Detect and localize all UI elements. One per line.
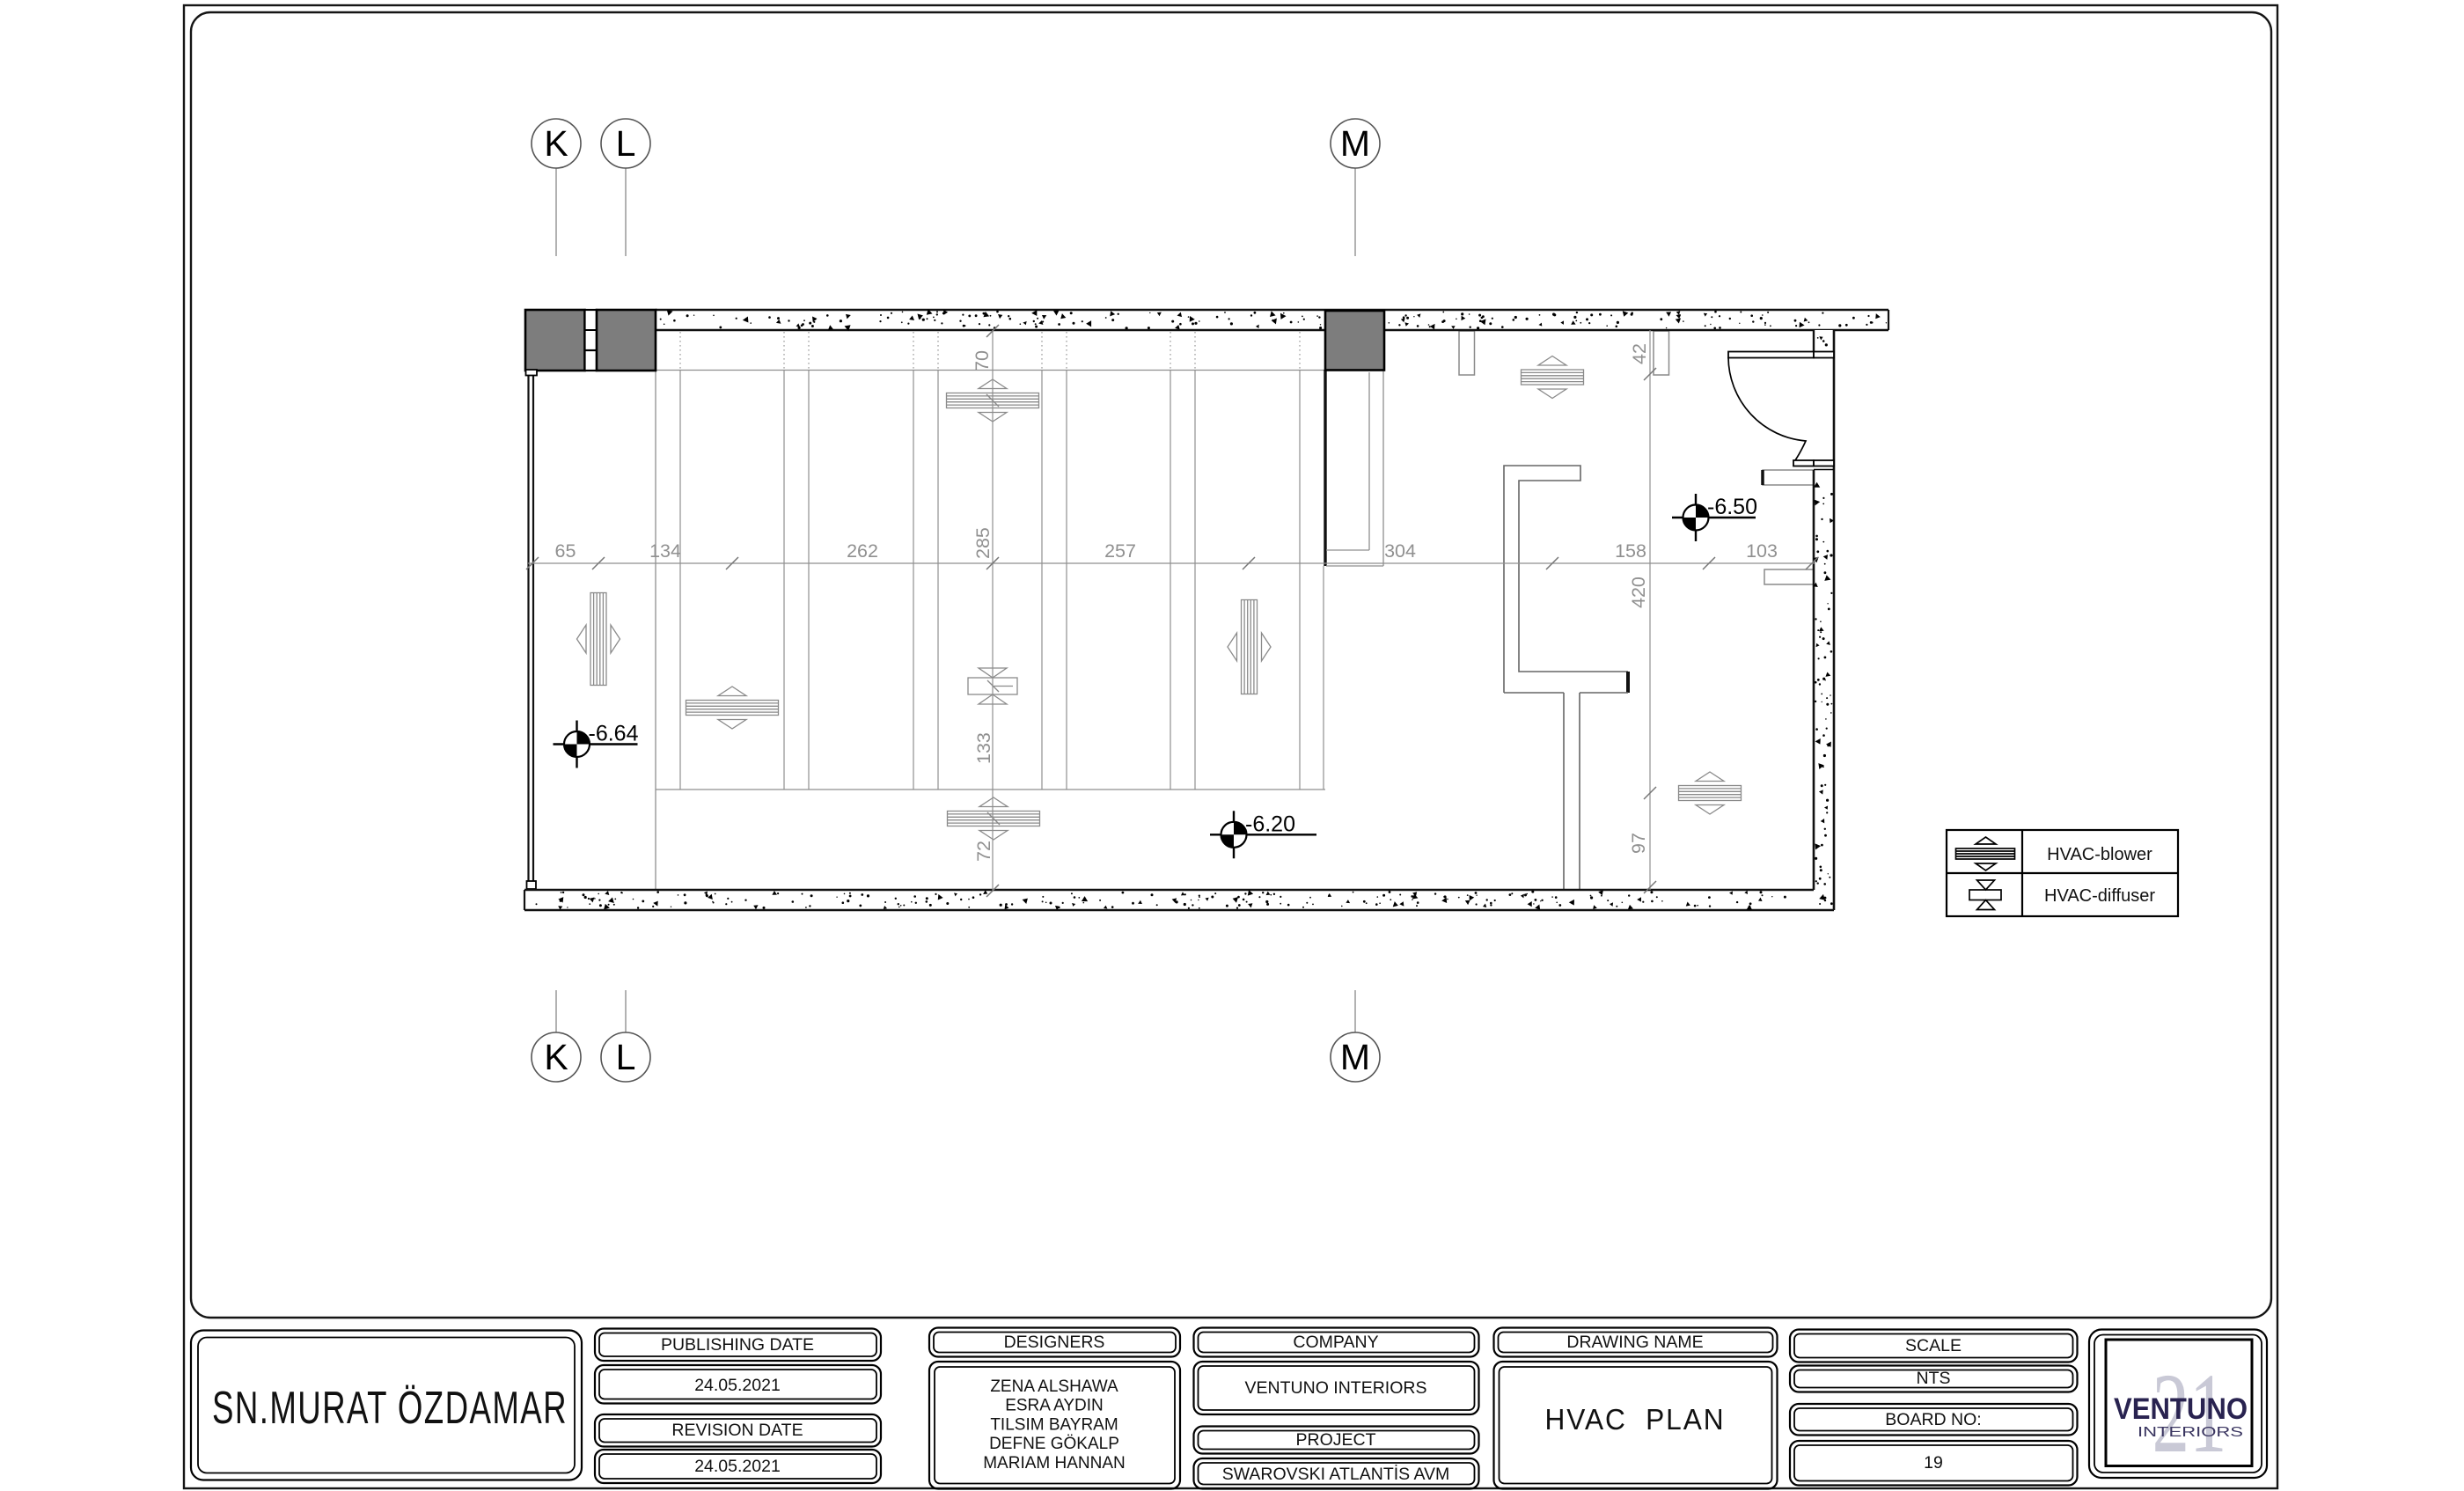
svg-text:VENTUNO: VENTUNO — [2114, 1392, 2248, 1426]
svg-text:DRAWING NAME: DRAWING NAME — [1566, 1333, 1703, 1352]
svg-text:M: M — [1340, 123, 1370, 164]
svg-text:DESIGNERS: DESIGNERS — [1004, 1333, 1105, 1352]
svg-text:HVAC-diffuser: HVAC-diffuser — [2044, 886, 2155, 906]
svg-text:-6.20: -6.20 — [1245, 812, 1295, 836]
svg-text:TILSIM BAYRAM: TILSIM BAYRAM — [990, 1415, 1118, 1434]
svg-text:ESRA AYDIN: ESRA AYDIN — [1005, 1397, 1104, 1415]
svg-text:70: 70 — [972, 350, 993, 371]
svg-text:NTS: NTS — [1917, 1369, 1951, 1388]
svg-text:304: 304 — [1384, 540, 1416, 562]
svg-text:72: 72 — [973, 841, 994, 862]
svg-text:PUBLISHING DATE: PUBLISHING DATE — [661, 1335, 814, 1355]
svg-text:HVAC PLAN: HVAC PLAN — [1545, 1403, 1726, 1436]
svg-text:257: 257 — [1104, 540, 1136, 562]
svg-text:K: K — [544, 123, 568, 164]
svg-text:134: 134 — [649, 540, 681, 562]
svg-text:HVAC-blower: HVAC-blower — [2047, 845, 2152, 864]
svg-text:SN.MURAT ÖZDAMAR: SN.MURAT ÖZDAMAR — [212, 1383, 568, 1434]
svg-text:133: 133 — [973, 732, 994, 764]
svg-text:SWAROVSKI ATLANTİS AVM: SWAROVSKI ATLANTİS AVM — [1222, 1464, 1450, 1484]
svg-text:42: 42 — [1629, 343, 1650, 364]
svg-text:L: L — [616, 123, 636, 164]
svg-text:24.05.2021: 24.05.2021 — [694, 1376, 781, 1395]
svg-text:VENTUNO INTERIORS: VENTUNO INTERIORS — [1245, 1378, 1427, 1398]
svg-text:MARIAM HANNAN: MARIAM HANNAN — [983, 1454, 1126, 1473]
svg-text:24.05.2021: 24.05.2021 — [694, 1457, 781, 1476]
svg-text:19: 19 — [1924, 1453, 1943, 1473]
svg-text:-6.64: -6.64 — [589, 722, 639, 746]
svg-text:97: 97 — [1628, 833, 1649, 854]
svg-text:103: 103 — [1746, 540, 1778, 562]
svg-text:-6.50: -6.50 — [1707, 495, 1757, 519]
svg-text:65: 65 — [555, 540, 576, 562]
svg-text:BOARD NO:: BOARD NO: — [1885, 1410, 1981, 1429]
svg-text:COMPANY: COMPANY — [1293, 1333, 1378, 1352]
svg-text:L: L — [616, 1037, 636, 1077]
svg-text:PROJECT: PROJECT — [1295, 1430, 1375, 1450]
svg-text:INTERIORS: INTERIORS — [2138, 1425, 2243, 1440]
svg-text:K: K — [544, 1037, 568, 1077]
svg-text:SCALE: SCALE — [1905, 1336, 1962, 1355]
svg-text:262: 262 — [847, 540, 878, 562]
svg-text:285: 285 — [972, 527, 994, 559]
svg-text:420: 420 — [1628, 577, 1649, 608]
svg-text:DEFNE GÖKALP: DEFNE GÖKALP — [989, 1435, 1119, 1453]
svg-text:M: M — [1340, 1037, 1370, 1077]
svg-text:158: 158 — [1615, 540, 1646, 562]
svg-text:ZENA ALSHAWA: ZENA ALSHAWA — [990, 1377, 1118, 1396]
svg-text:REVISION DATE: REVISION DATE — [671, 1421, 803, 1440]
